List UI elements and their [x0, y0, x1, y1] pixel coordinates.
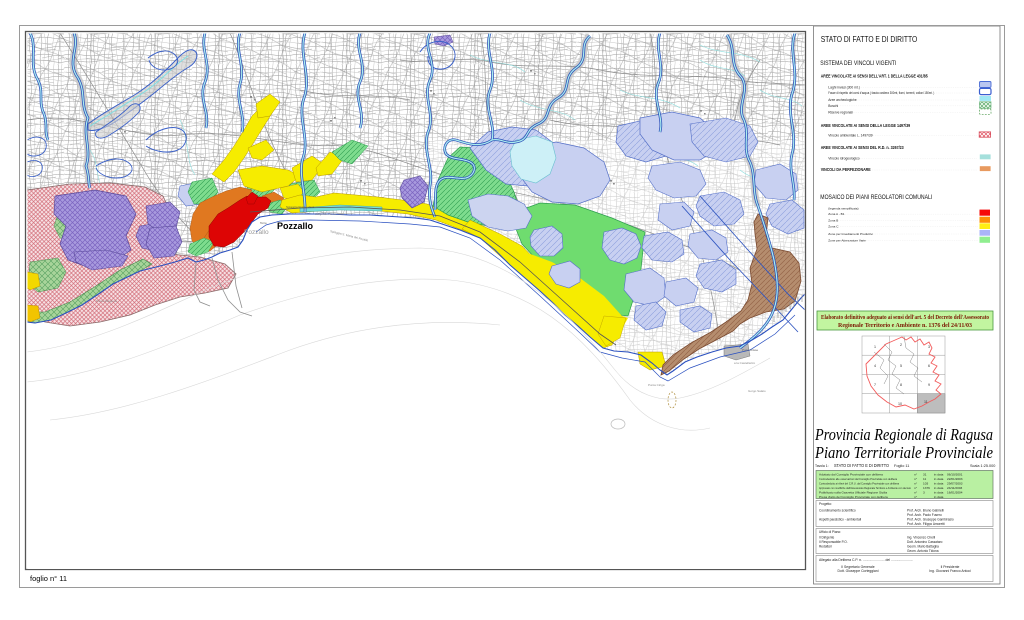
svg-text:Geom. Antonio Tidona: Geom. Antonio Tidona	[907, 549, 939, 553]
svg-text:Zone per Insediamenti Produtti: Zone per Insediamenti Produttivi	[828, 232, 873, 236]
svg-text:Prof. Arch. Giuseppe Gambirasi: Prof. Arch. Giuseppe Gambirasio	[907, 518, 954, 522]
svg-text:Approvato con modifiche dall'A: Approvato con modifiche dall'Assessorato…	[819, 486, 911, 490]
svg-text:Tavola 1:: Tavola 1:	[815, 464, 829, 468]
svg-text:31: 31	[923, 473, 927, 477]
svg-text:Ing. Vincenzo Cirelli: Ing. Vincenzo Cirelli	[907, 536, 935, 540]
svg-text:Vincolo ambientale L. 1497/39: Vincolo ambientale L. 1497/39	[828, 134, 872, 138]
svg-text:Pubblicato sulla Gazzetta Uffi: Pubblicato sulla Gazzetta Ufficiale Regi…	[819, 491, 887, 495]
svg-text:6: 6	[928, 364, 930, 368]
svg-text:Porto Ulisse: Porto Ulisse	[742, 348, 759, 352]
svg-text:SISTEMA DEI VINCOLI VIGENTI: SISTEMA DEI VINCOLI VIGENTI	[820, 60, 896, 67]
svg-text:Allegato alla Delibera C.P. n.: Allegato alla Delibera C.P. n. .........…	[819, 558, 913, 562]
svg-text:VINCOLI DA PERFEZIONARE: VINCOLI DA PERFEZIONARE	[821, 167, 871, 172]
svg-text:in data: in data	[934, 477, 944, 481]
svg-text:in data: in data	[934, 491, 944, 495]
svg-text:Punta Religione: Punta Religione	[96, 299, 118, 303]
svg-text:Laghi invasi (300 mt.): Laghi invasi (300 mt.)	[828, 85, 860, 89]
svg-text:8: 8	[900, 383, 902, 387]
svg-text:Punta Ciriga: Punta Ciriga	[648, 383, 665, 387]
svg-text:Dott. Antonino Cassataro: Dott. Antonino Cassataro	[907, 540, 943, 544]
svg-text:16/01/2004: 16/01/2004	[947, 491, 963, 495]
svg-text:1: 1	[874, 345, 876, 349]
svg-text:in data: in data	[934, 495, 944, 499]
svg-text:Piano Territoriale Provinciale: Piano Territoriale Provinciale	[814, 443, 993, 462]
svg-text:Presa d'atto del Consiglio Pro: Presa d'atto del Consiglio Provinciale c…	[819, 495, 888, 499]
svg-text:MOSAICO DEI PIANI REGOLATORI C: MOSAICO DEI PIANI REGOLATORI COMUNALI	[820, 194, 932, 201]
svg-text:(legenda semplificata): (legenda semplificata)	[828, 207, 858, 211]
svg-text:Zone per Attrezzature Varie: Zone per Attrezzature Varie	[828, 238, 866, 242]
svg-text:22/01/2003: 22/01/2003	[947, 477, 963, 481]
svg-text:Regionale Territorio e Ambient: Regionale Territorio e Ambiente n. 1376 …	[838, 323, 972, 329]
svg-text:Pozzallo: Pozzallo	[244, 229, 269, 236]
svg-text:Aree archeologiche: Aree archeologiche	[828, 98, 857, 102]
svg-text:STATO DI FATTO E DI DIRITTO: STATO DI FATTO E DI DIRITTO	[821, 34, 918, 44]
svg-text:AREE VINCOLATE AI SENSI DEL R.: AREE VINCOLATE AI SENSI DEL R.D. n. 3267…	[821, 145, 905, 150]
svg-text:Sorgente Fiume Vava: Sorgente Fiume Vava	[315, 212, 344, 216]
svg-text:24/11/2003: 24/11/2003	[947, 486, 963, 490]
svg-text:Fasce di rispetto dei corsi d': Fasce di rispetto dei corsi d'acqua ( fa…	[828, 91, 934, 95]
svg-text:9: 9	[928, 383, 930, 387]
svg-text:4: 4	[874, 364, 876, 368]
svg-text:2: 2	[900, 343, 902, 347]
svg-text:Geom. Mario Battaglia: Geom. Mario Battaglia	[907, 545, 939, 549]
svg-text:Pozzallo: Pozzallo	[277, 221, 314, 231]
svg-text:AREE VINCOLATE AI SENSI DELLA: AREE VINCOLATE AI SENSI DELLA LEGGE 1497…	[821, 123, 911, 128]
svg-text:Foglio 11: Foglio 11	[894, 464, 909, 468]
svg-text:Elaborato definitivo adeguato: Elaborato definitivo adeguato ai sensi d…	[821, 315, 989, 321]
svg-text:in data: in data	[934, 473, 944, 477]
svg-text:3: 3	[923, 491, 925, 495]
svg-text:Adottato dal Consiglio Provinc: Adottato dal Consiglio Provinciale con d…	[819, 473, 883, 477]
svg-text:Il Responsabile P.O.: Il Responsabile P.O.	[819, 540, 848, 544]
svg-text:1376: 1376	[923, 486, 930, 490]
svg-text:Controdedotto ai rilievi del C: Controdedotto ai rilievi del C.R.U. dal …	[819, 482, 899, 486]
svg-text:Dott. Giuseppe Corteggiani: Dott. Giuseppe Corteggiani	[838, 569, 879, 573]
svg-text:29/07/2003: 29/07/2003	[947, 482, 963, 486]
svg-text:5: 5	[900, 364, 902, 368]
svg-text:AREE VINCOLATE AI SENSI DELL'A: AREE VINCOLATE AI SENSI DELL'ART. 1 DELL…	[821, 74, 928, 79]
svg-text:STATO DI FATTO E DI DIRITTO: STATO DI FATTO E DI DIRITTO	[834, 463, 890, 468]
svg-text:Controdedotto alle osservazion: Controdedotto alle osservazioni dal Cons…	[819, 477, 897, 481]
svg-text:06/10/2001: 06/10/2001	[947, 473, 963, 477]
svg-text:Ing. Giovanni Franco Antoci: Ing. Giovanni Franco Antoci	[929, 569, 971, 573]
svg-text:10: 10	[898, 402, 902, 406]
svg-text:Vincolo idrogeologico: Vincolo idrogeologico	[828, 157, 859, 161]
svg-text:103: 103	[923, 482, 928, 486]
svg-text:Boschi: Boschi	[828, 104, 838, 108]
svg-text:Riserve regionali: Riserve regionali	[828, 111, 853, 115]
svg-text:Zona A - B1: Zona A - B1	[828, 212, 844, 216]
svg-text:11: 11	[924, 400, 928, 404]
svg-text:Gorgo Salato: Gorgo Salato	[748, 389, 766, 393]
svg-text:Provincia Regionale di Ragusa: Provincia Regionale di Ragusa	[814, 425, 993, 444]
svg-text:foglio n° 11: foglio n° 11	[30, 574, 67, 583]
svg-text:Redattori: Redattori	[819, 545, 832, 549]
svg-text:Zona C: Zona C	[828, 225, 839, 229]
svg-text:Il Dirigente: Il Dirigente	[819, 536, 834, 540]
svg-text:a la Castellazzo: a la Castellazzo	[734, 361, 756, 365]
svg-text:Ufficio di Piano:: Ufficio di Piano:	[819, 530, 841, 534]
svg-text:Prof. Arch. Bruno Gabrielli: Prof. Arch. Bruno Gabrielli	[907, 509, 944, 513]
svg-text:Spiaggia Fiume Vava: Spiaggia Fiume Vava	[286, 205, 315, 209]
svg-text:Coordinamento scientifico: Coordinamento scientifico	[819, 509, 856, 513]
svg-text:7: 7	[874, 383, 876, 387]
svg-text:Prof. Arch. Filippo Amoretti: Prof. Arch. Filippo Amoretti	[907, 522, 945, 526]
svg-text:Zona B: Zona B	[828, 218, 838, 222]
svg-text:Prof. Arch. Paolo Fusero: Prof. Arch. Paolo Fusero	[907, 513, 942, 517]
svg-text:Progetto:: Progetto:	[819, 502, 832, 506]
svg-text:11: 11	[923, 477, 926, 481]
svg-text:Aspetti paesistico - ambiental: Aspetti paesistico - ambientali	[819, 518, 861, 522]
svg-text:Scala 1:25.000: Scala 1:25.000	[970, 464, 995, 468]
svg-text:Torre: Torre	[260, 221, 267, 225]
svg-text:in data: in data	[934, 482, 944, 486]
svg-text:3: 3	[928, 345, 930, 349]
svg-text:in data: in data	[934, 486, 944, 490]
